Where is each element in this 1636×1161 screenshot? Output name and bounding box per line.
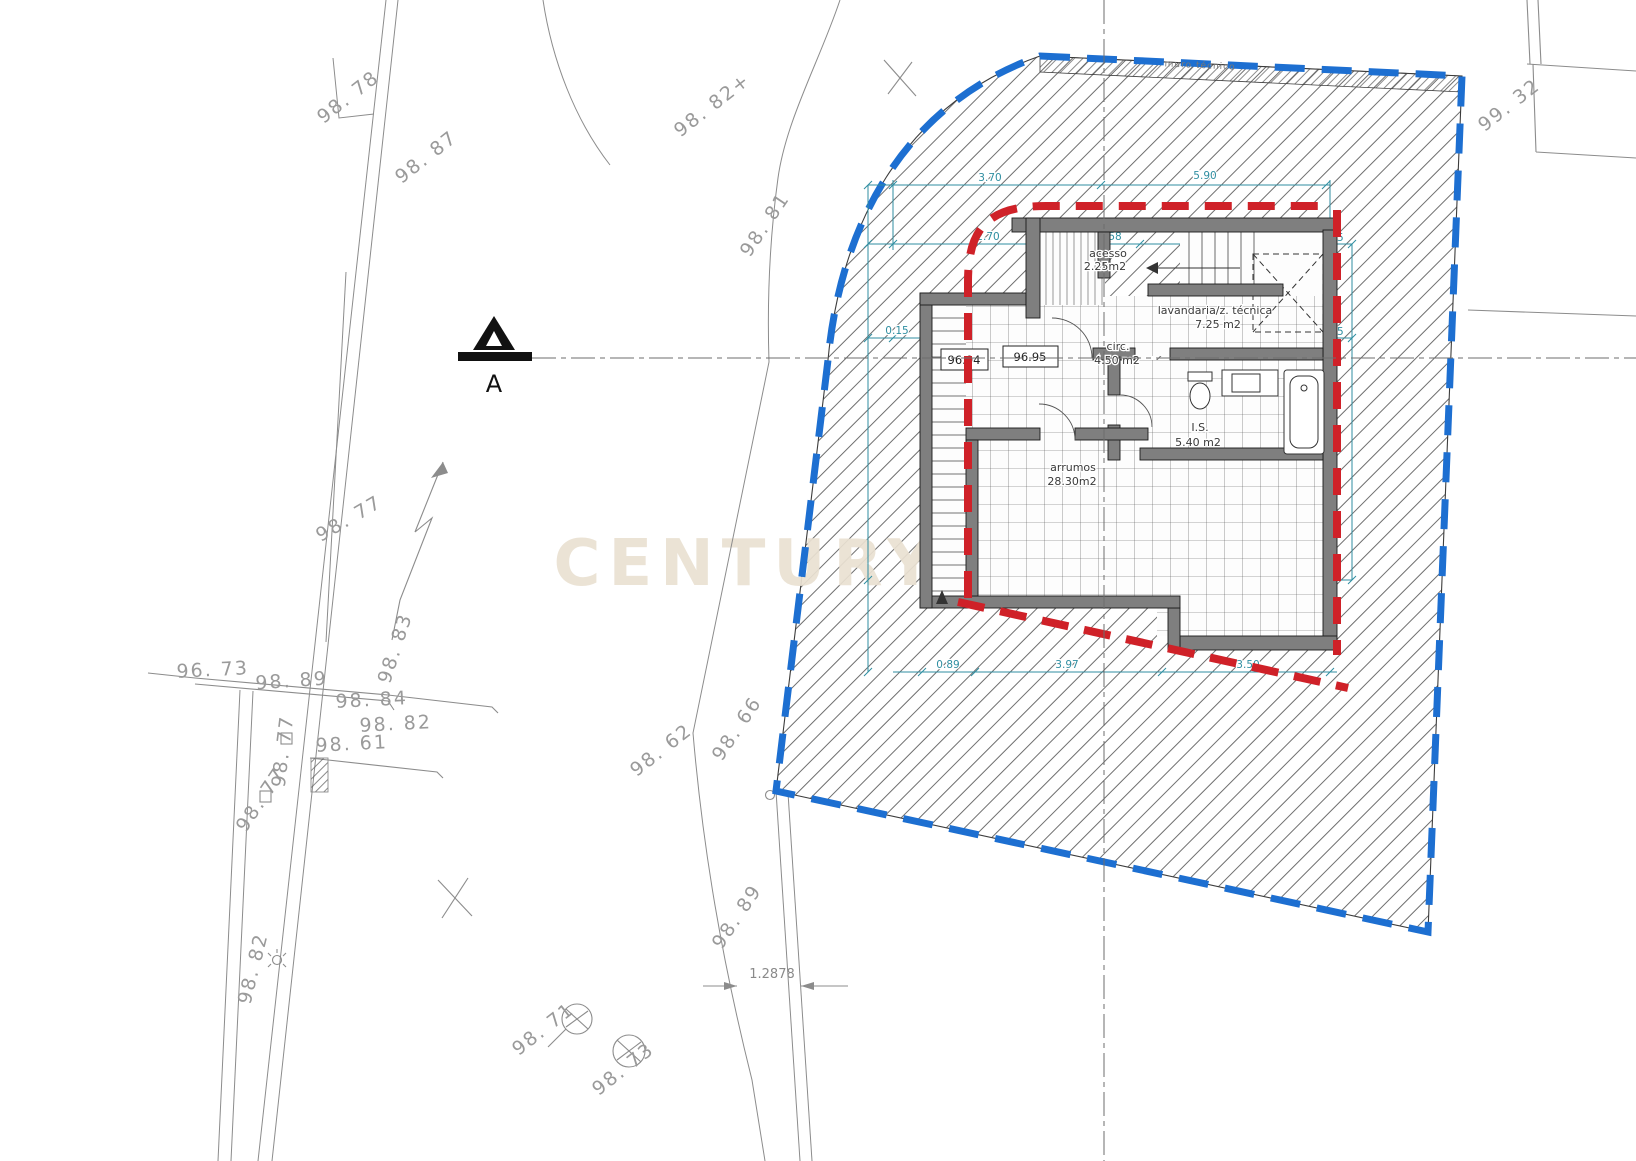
offset-dimension: 1.2878 [703,967,848,990]
washbasin-bowl-icon [1232,374,1260,392]
dim-arrow-icon [801,982,814,990]
section-marker-icon: A [458,316,532,398]
spot-elevation: 98. 81 [736,188,795,260]
room-name: acesso [1089,247,1127,260]
toilet-icon [1190,383,1210,409]
cross-marker-icon [438,878,472,918]
spot-elevation: 98. 77 [312,491,386,546]
room-name: I.S. [1191,421,1208,434]
spot-elevation: 98. 82+ [670,69,755,142]
toilet-tank-icon [1188,372,1212,381]
room-area: 4.50 m2 [1094,354,1140,367]
level-value: 96.95 [1014,350,1047,364]
spot-elevation: 98. 61 [315,731,388,757]
room-name: arrumos [1050,461,1096,474]
vegetation-icon [268,949,286,967]
steps-hatch-icon [311,758,328,792]
dim-label: 3.97 [1055,659,1078,671]
spot-elevation: 96. 73 [176,657,249,683]
neighbor-lines-right [1468,0,1636,316]
room-area: 7.25 m2 [1195,318,1241,331]
site-plan-drawing: CENTURY21 [0,0,1636,1161]
spot-elevation: 98. 83 [374,610,417,686]
room-name: circ. [1107,340,1130,353]
spot-elevation: 98. 84 [335,687,408,713]
spot-elevation: 98. 89 [255,668,329,695]
dim-arrow-icon [724,982,737,990]
dim-label: 3.70 [978,172,1001,184]
dim-label: 0.15 [885,325,908,337]
spot-elevation: 98. 66 [708,692,767,764]
dim-label: 5.90 [1193,170,1216,182]
spot-elevation: 98. 73 [588,1038,659,1100]
room-area: 28.30m2 [1047,475,1096,488]
room-area: 2.25m2 [1084,260,1126,273]
section-label: A [486,370,503,398]
room-area: 5.40 m2 [1175,436,1221,449]
drain-icon [1301,385,1307,391]
spot-elevation: 98. 89 [708,880,767,952]
spot-elevation: 98. 77 [232,763,291,835]
spot-elevation: 98. 71 [508,998,579,1060]
spot-elevation: 98. 62 [626,719,697,781]
dim-label: 0.89 [936,659,959,671]
room-name: lavandaria/z. técnica [1158,304,1272,317]
cross-marker-icon [884,60,916,96]
spot-elevation: 98. 87 [391,126,462,188]
offset-dimension-value: 1.2878 [749,967,795,982]
